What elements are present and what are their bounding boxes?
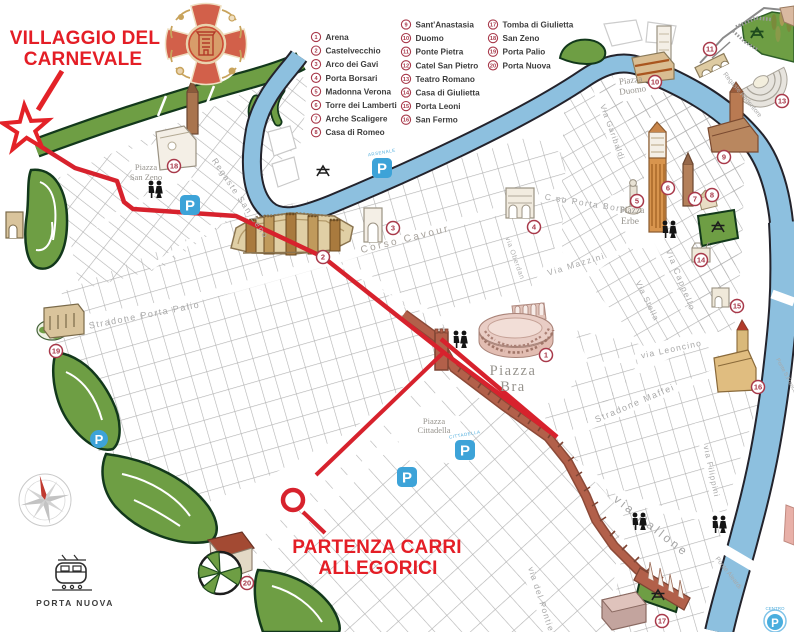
svg-text:Madonna Verona: Madonna Verona (326, 87, 392, 96)
svg-text:6: 6 (314, 103, 317, 109)
svg-text:Piazza: Piazza (490, 363, 537, 379)
svg-text:Arco dei Gavi: Arco dei Gavi (326, 60, 379, 69)
svg-text:PORTA NUOVA: PORTA NUOVA (36, 598, 114, 608)
svg-text:2: 2 (314, 49, 317, 55)
svg-text:Porta Palio: Porta Palio (503, 48, 546, 57)
svg-text:6: 6 (666, 184, 670, 193)
svg-text:11: 11 (403, 50, 409, 56)
svg-text:8: 8 (314, 130, 317, 136)
svg-text:12: 12 (403, 63, 409, 69)
svg-text:PARTENZA CARRI: PARTENZA CARRI (292, 537, 462, 558)
svg-text:P: P (771, 618, 779, 630)
svg-text:20: 20 (490, 63, 496, 69)
svg-text:Arena: Arena (326, 33, 350, 42)
svg-text:7: 7 (314, 117, 317, 123)
svg-text:Casa di Romeo: Casa di Romeo (326, 128, 385, 137)
svg-text:7: 7 (693, 195, 697, 204)
svg-text:Bra: Bra (500, 379, 525, 395)
svg-text:Porta Leoni: Porta Leoni (416, 102, 461, 111)
svg-text:P: P (95, 432, 104, 447)
svg-text:Castelvecchio: Castelvecchio (326, 47, 381, 56)
svg-text:1: 1 (544, 351, 548, 360)
svg-text:VILLAGGIO DEL: VILLAGGIO DEL (10, 28, 161, 49)
svg-text:11: 11 (706, 45, 714, 54)
svg-text:10: 10 (403, 36, 409, 42)
svg-text:10: 10 (651, 78, 659, 87)
svg-text:Erbe: Erbe (621, 217, 639, 227)
svg-text:3: 3 (391, 224, 395, 233)
svg-text:Catel San Pietro: Catel San Pietro (416, 61, 479, 70)
svg-text:9: 9 (404, 23, 407, 29)
svg-text:Arche Scaligere: Arche Scaligere (326, 115, 388, 124)
svg-text:Torre dei Lamberti: Torre dei Lamberti (326, 101, 397, 110)
svg-text:Casa di Giulietta: Casa di Giulietta (416, 89, 481, 98)
svg-text:5: 5 (314, 89, 317, 95)
svg-text:CENTRO: CENTRO (766, 606, 785, 611)
svg-text:Sant'Anastasia: Sant'Anastasia (416, 21, 475, 30)
svg-text:16: 16 (754, 383, 762, 392)
svg-text:CARNEVALE: CARNEVALE (24, 49, 143, 70)
svg-text:18: 18 (490, 36, 496, 42)
svg-text:13: 13 (403, 77, 409, 83)
svg-text:15: 15 (403, 104, 409, 110)
svg-text:2: 2 (321, 253, 325, 262)
svg-text:9: 9 (722, 153, 726, 162)
svg-text:18: 18 (170, 162, 178, 171)
svg-text:Piazza: Piazza (620, 206, 646, 216)
svg-text:8: 8 (710, 191, 714, 200)
svg-text:Porta Nuova: Porta Nuova (503, 61, 552, 70)
svg-text:ALLEGORICI: ALLEGORICI (318, 558, 437, 579)
svg-text:13: 13 (778, 97, 786, 106)
svg-text:19: 19 (52, 347, 60, 356)
svg-text:1: 1 (314, 35, 317, 41)
svg-text:Cittadella: Cittadella (417, 425, 450, 435)
svg-text:17: 17 (658, 617, 666, 626)
svg-text:Teatro Romano: Teatro Romano (416, 75, 475, 84)
svg-text:Tomba di Giulietta: Tomba di Giulietta (503, 21, 574, 30)
svg-text:5: 5 (635, 197, 639, 206)
svg-text:19: 19 (490, 50, 496, 56)
svg-text:14: 14 (697, 256, 706, 265)
svg-text:Duomo: Duomo (416, 34, 444, 43)
svg-text:San Fermo: San Fermo (416, 116, 458, 125)
svg-text:San Zeno: San Zeno (130, 172, 162, 182)
svg-text:14: 14 (403, 91, 410, 97)
svg-text:San Zeno: San Zeno (503, 34, 540, 43)
svg-text:3: 3 (314, 62, 317, 68)
svg-text:Porta Borsari: Porta Borsari (326, 74, 378, 83)
svg-text:17: 17 (490, 23, 496, 29)
svg-text:20: 20 (243, 579, 251, 588)
svg-text:Piazza: Piazza (135, 162, 157, 172)
svg-text:Ponte Pietra: Ponte Pietra (416, 48, 464, 57)
svg-text:16: 16 (403, 118, 409, 124)
svg-text:15: 15 (733, 302, 741, 311)
